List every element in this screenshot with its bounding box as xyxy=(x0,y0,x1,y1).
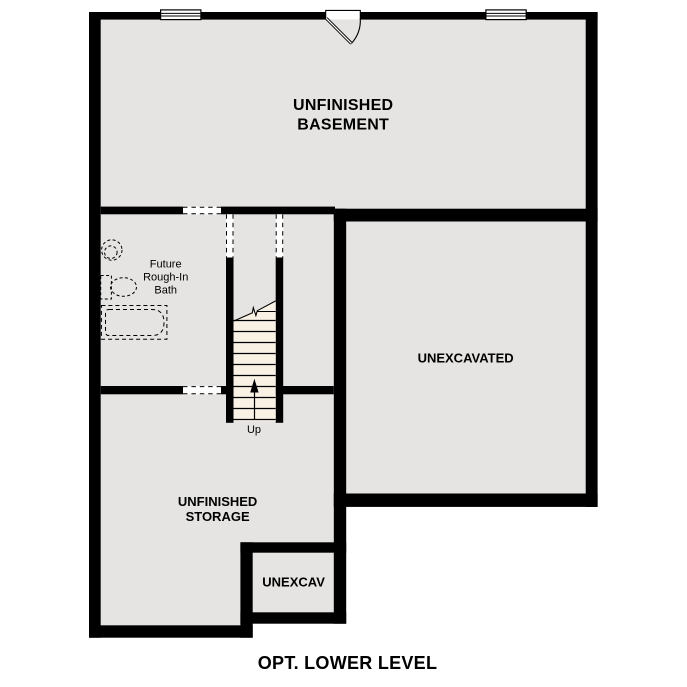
svg-text:UNFINISHED: UNFINISHED xyxy=(293,97,393,114)
svg-text:Future: Future xyxy=(150,258,182,270)
svg-text:BASEMENT: BASEMENT xyxy=(297,116,389,133)
svg-text:UNEXCAVATED: UNEXCAVATED xyxy=(418,350,514,365)
svg-text:STORAGE: STORAGE xyxy=(186,509,250,524)
svg-text:Bath: Bath xyxy=(154,285,177,297)
svg-text:UNFINISHED: UNFINISHED xyxy=(178,494,257,509)
svg-text:Rough-In: Rough-In xyxy=(143,272,188,284)
svg-text:Up: Up xyxy=(247,424,261,436)
svg-text:UNEXCAV: UNEXCAV xyxy=(262,575,325,590)
svg-text:OPT. LOWER LEVEL: OPT. LOWER LEVEL xyxy=(258,653,438,673)
